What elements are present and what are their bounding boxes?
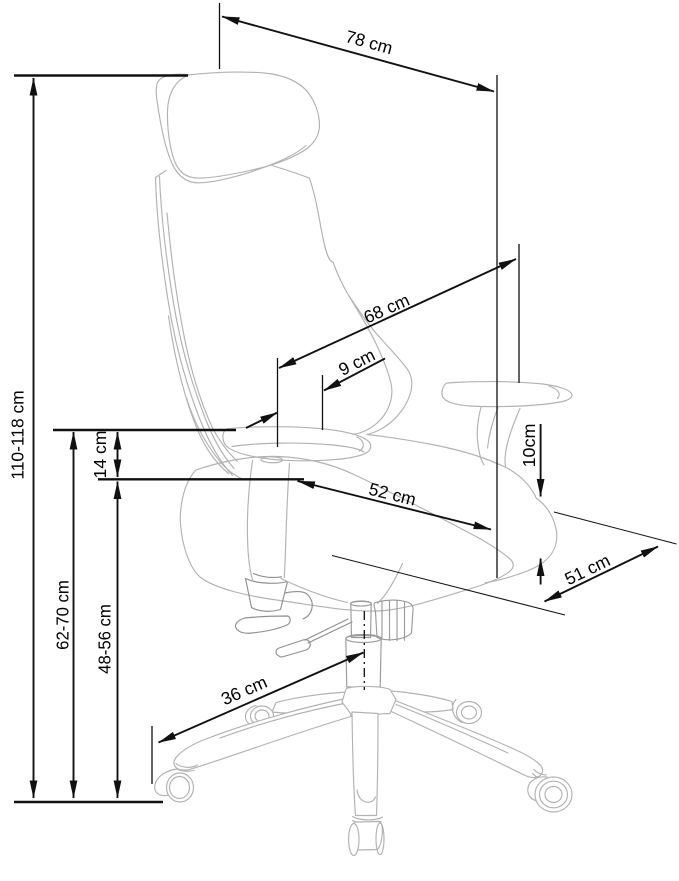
svg-text:110-118 cm: 110-118 cm — [7, 390, 27, 479]
svg-text:14 cm: 14 cm — [90, 431, 110, 479]
svg-text:51 cm: 51 cm — [561, 550, 613, 589]
svg-text:10cm: 10cm — [519, 424, 539, 468]
svg-text:62-70 cm: 62-70 cm — [52, 580, 73, 650]
svg-text:9 cm: 9 cm — [335, 345, 378, 380]
svg-text:48-56 cm: 48-56 cm — [94, 604, 115, 674]
svg-text:68 cm: 68 cm — [361, 290, 413, 328]
svg-text:36 cm: 36 cm — [218, 672, 270, 709]
svg-text:78 cm: 78 cm — [343, 26, 395, 58]
